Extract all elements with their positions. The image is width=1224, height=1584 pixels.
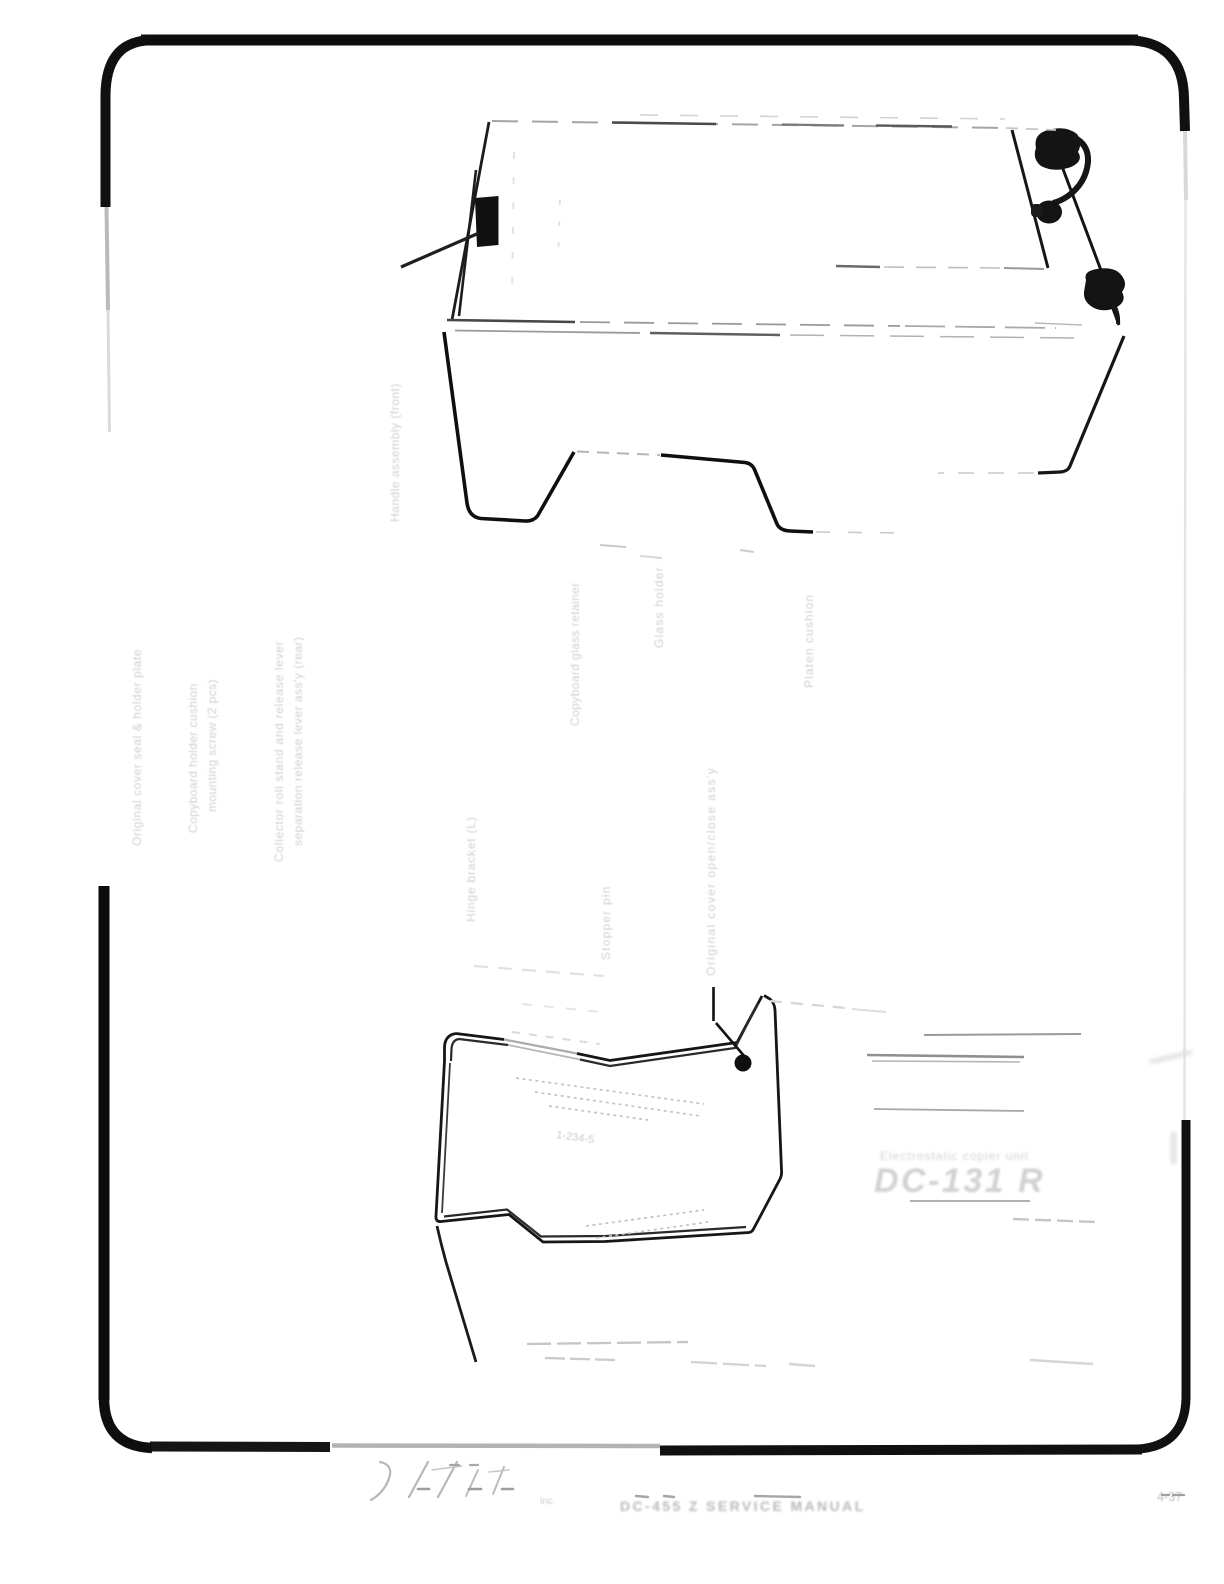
svg-text:Copyboard holder cushion: Copyboard holder cushion xyxy=(186,683,200,833)
svg-text:DC-455 Z SERVICE MANUAL: DC-455 Z SERVICE MANUAL xyxy=(620,1498,866,1514)
svg-text:inc.: inc. xyxy=(540,1496,556,1507)
svg-text:mounting screw (2 pcs): mounting screw (2 pcs) xyxy=(205,679,219,812)
svg-text:Handle assembly (front): Handle assembly (front) xyxy=(388,383,402,522)
svg-text:Platen cushion: Platen cushion xyxy=(802,594,816,688)
svg-text:Electrostatic copier unit: Electrostatic copier unit xyxy=(880,1149,1029,1163)
svg-text:Hinge bracket (L): Hinge bracket (L) xyxy=(464,816,478,922)
svg-text:1-234-5: 1-234-5 xyxy=(556,1129,595,1146)
svg-text:separation release lever ass'y: separation release lever ass'y (rear) xyxy=(291,636,305,846)
svg-text:4-37: 4-37 xyxy=(1157,1490,1182,1504)
svg-text:Collector roll stand and relea: Collector roll stand and release lever xyxy=(272,641,286,862)
svg-text:Stopper pin: Stopper pin xyxy=(599,885,613,960)
svg-text:Original cover seal & holder p: Original cover seal & holder plate xyxy=(130,649,144,846)
svg-text:DC-131 R: DC-131 R xyxy=(874,1162,1045,1200)
svg-text:Copyboard glass retainer: Copyboard glass retainer xyxy=(568,582,582,726)
svg-text:Glass holder: Glass holder xyxy=(652,566,666,648)
svg-text:Original cover open/close ass': Original cover open/close ass'y xyxy=(704,767,718,976)
